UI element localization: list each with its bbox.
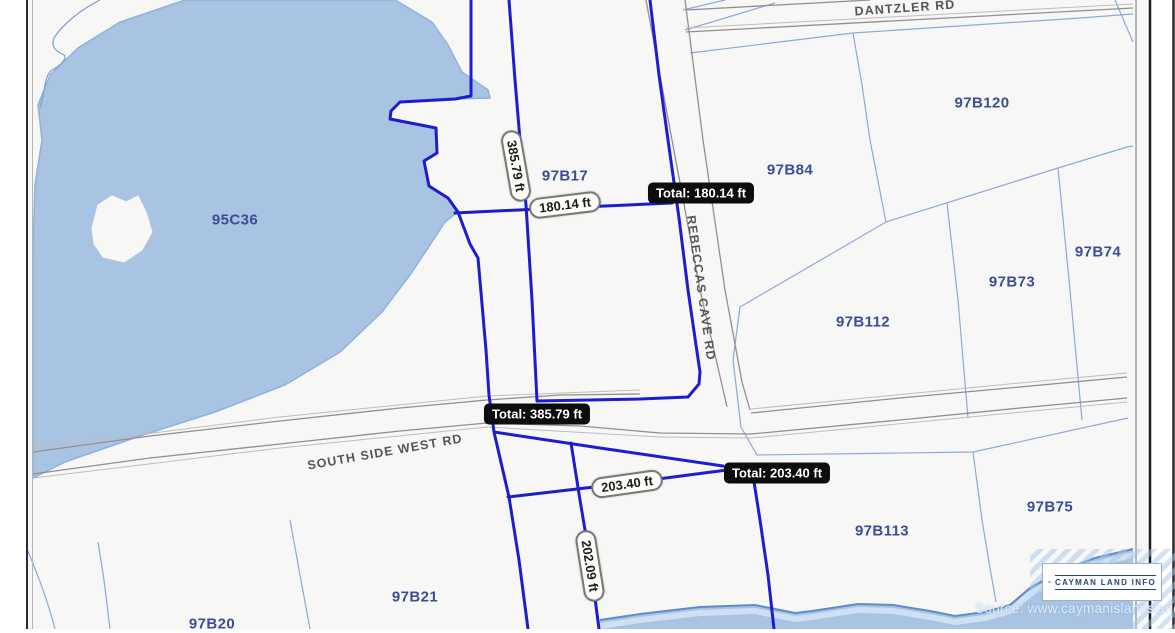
source-attribution: Source: www.caymanislandsland: [975, 601, 1175, 616]
cayman-land-info-watermark: CAYMAN LAND INFO: [1030, 549, 1175, 629]
map-canvas[interactable]: 95C3697B1797B8497B12097B7497B7397B11297B…: [0, 0, 1175, 629]
logo-title: CAYMAN LAND INFO: [1055, 575, 1156, 590]
cadastral-map: [0, 0, 1175, 629]
shell-icon: [1048, 567, 1051, 597]
cayman-land-info-logo: CAYMAN LAND INFO: [1042, 563, 1162, 601]
